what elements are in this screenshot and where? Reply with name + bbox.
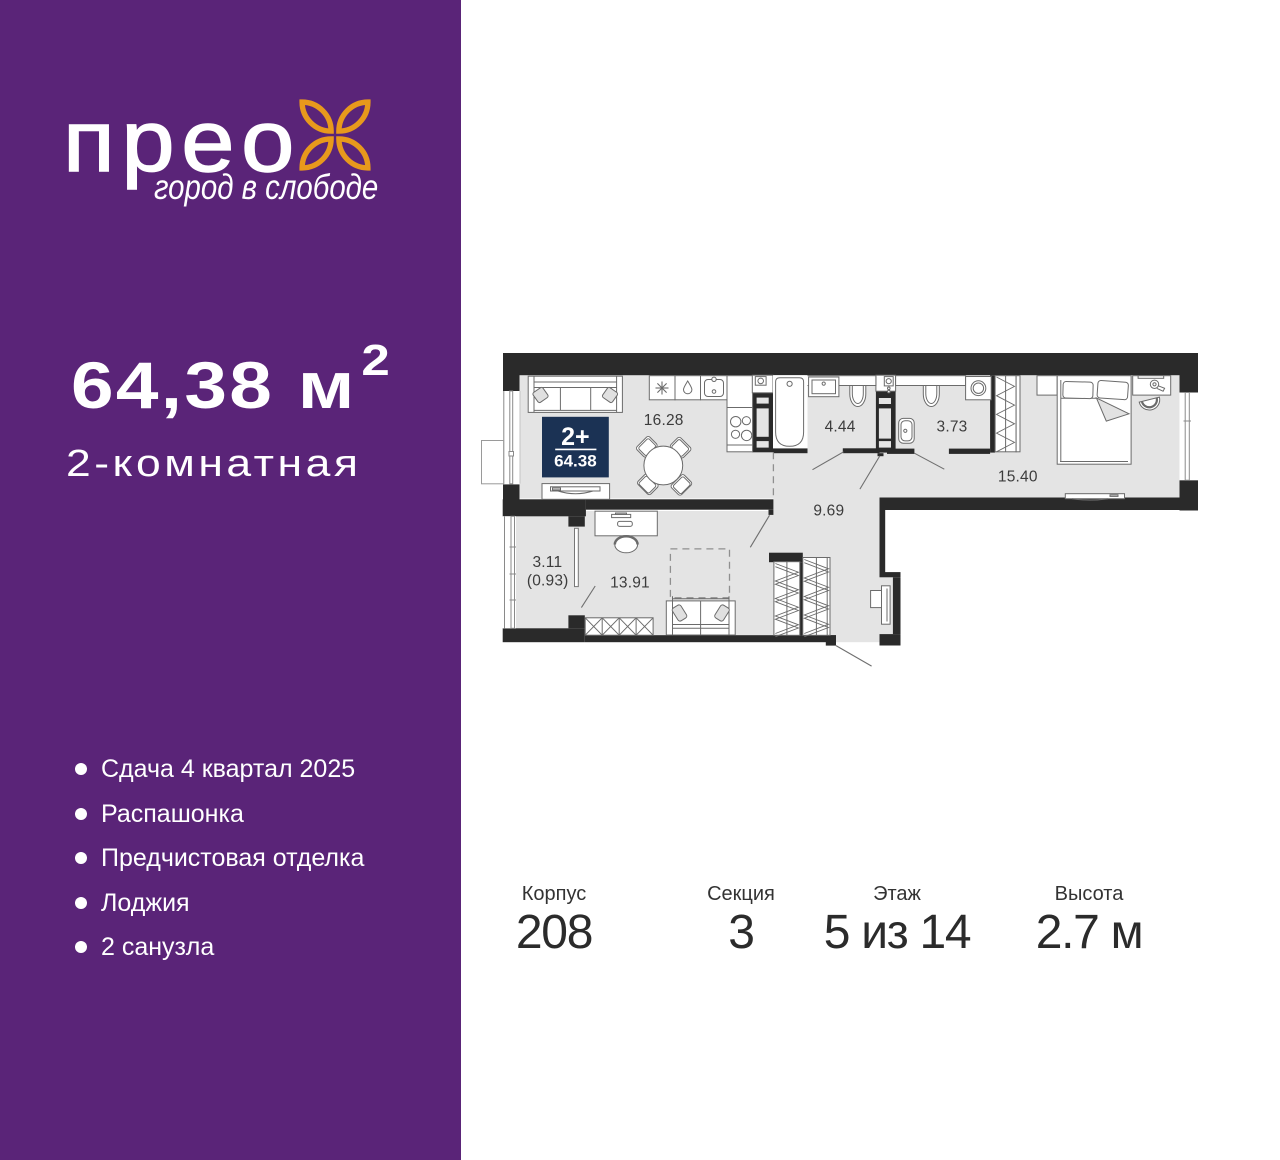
svg-text:16.28: 16.28 [644,412,684,429]
svg-text:64.38: 64.38 [554,452,597,471]
svg-text:13.91: 13.91 [610,575,650,592]
svg-text:9.69: 9.69 [813,503,844,520]
svg-text:15.40: 15.40 [998,469,1038,486]
svg-text:3.73: 3.73 [937,419,968,436]
svg-text:4.44: 4.44 [825,419,856,436]
svg-text:2+: 2+ [561,423,590,451]
svg-text:(0.93): (0.93) [527,573,569,590]
svg-text:3.11: 3.11 [532,554,562,571]
